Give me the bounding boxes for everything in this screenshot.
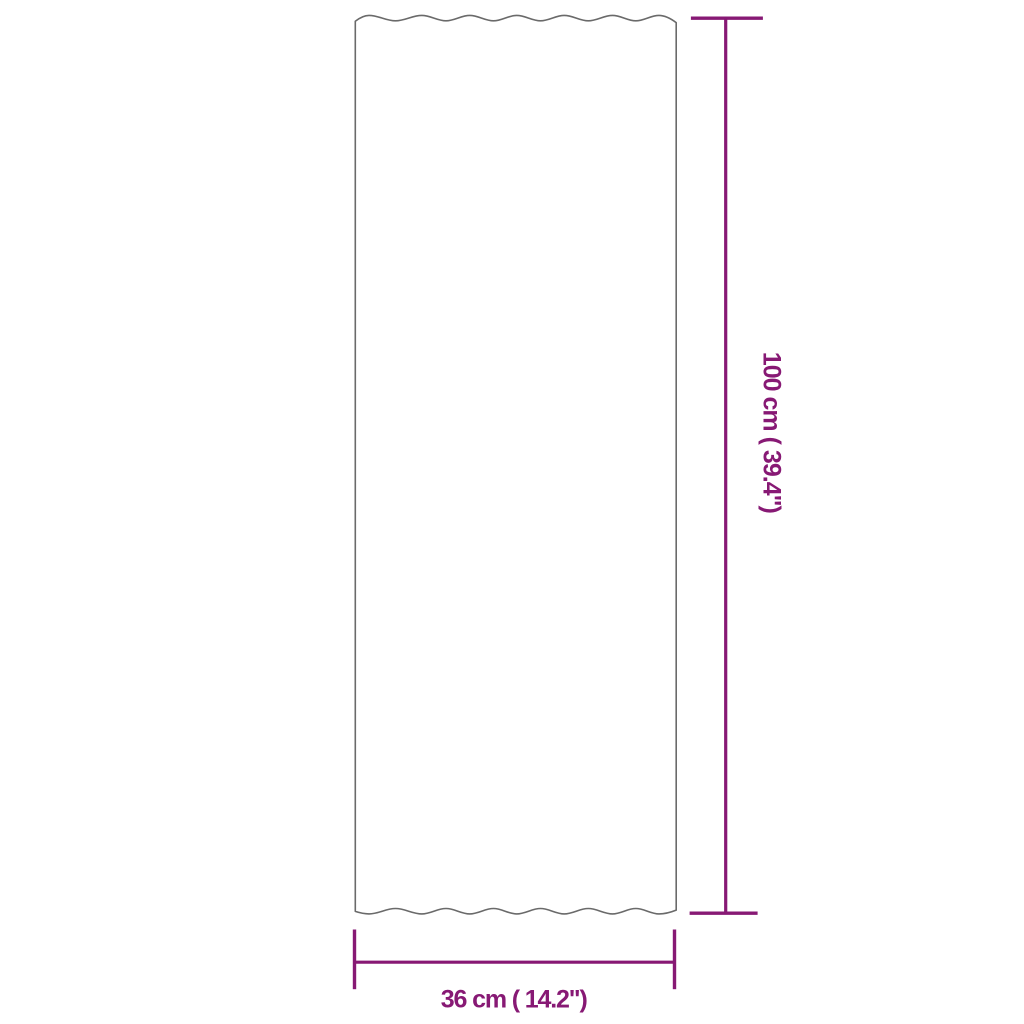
svg-text:100 cm ( 39.4"): 100 cm ( 39.4") bbox=[757, 352, 785, 514]
svg-text:36 cm ( 14.2"): 36 cm ( 14.2") bbox=[441, 985, 588, 1013]
